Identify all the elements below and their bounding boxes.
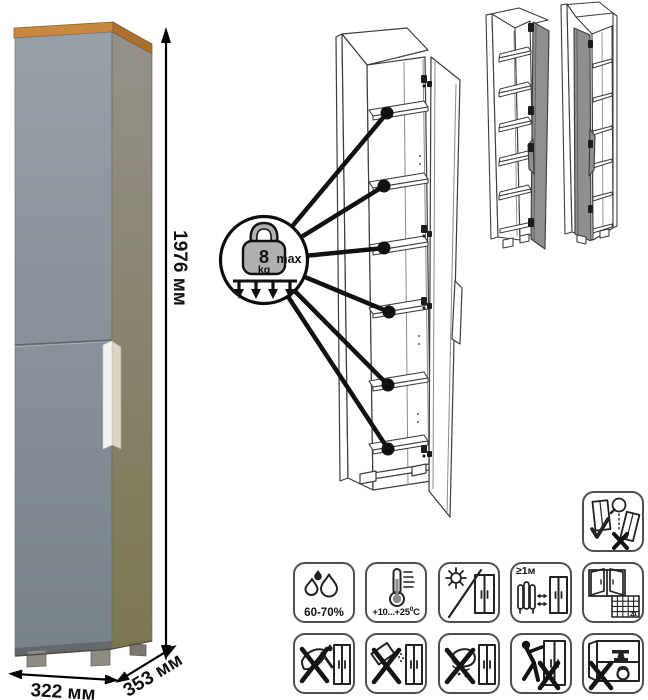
calendar-day: 21 xyxy=(630,611,638,618)
variant-door-right xyxy=(486,8,549,249)
open-window-icon xyxy=(589,569,625,596)
avoid-direct-sunlight-icon xyxy=(438,562,500,623)
open-cabinet-drawing xyxy=(336,28,462,517)
temperature-range-icon: +10...+250C xyxy=(365,562,427,623)
anvil-icon xyxy=(612,650,629,661)
ventilate-room-icon: 21 xyxy=(582,562,644,623)
foot xyxy=(503,238,513,248)
double-arrow-icon xyxy=(537,594,548,607)
weight-unit: kg xyxy=(258,264,270,276)
weight-qualifier: max xyxy=(276,252,301,266)
radiator-icon xyxy=(518,582,535,613)
no-sharp-tools-icon xyxy=(293,633,355,694)
foot xyxy=(360,471,376,484)
calendar-icon: 21 xyxy=(612,596,639,618)
shelf-weight-badge: 8 kg max xyxy=(221,217,308,304)
no-abrasive-cleaners-icon xyxy=(365,633,427,694)
foot xyxy=(600,229,609,238)
arrowhead-right-icon xyxy=(105,675,120,686)
dimension-height: 1976 мм xyxy=(161,27,190,661)
foot xyxy=(520,234,529,243)
wardrobe-glyph xyxy=(550,577,567,613)
foot xyxy=(577,235,586,244)
furniture-spec-sheet: 1976 мм 322 мм 353 мм xyxy=(0,0,648,700)
variant-door-left xyxy=(561,2,617,244)
distance-label: ≥1м xyxy=(516,565,535,577)
door-handle-side xyxy=(112,341,121,449)
x-mark-icon xyxy=(591,663,611,688)
x-mark-icon xyxy=(302,649,327,681)
door-handle xyxy=(103,341,112,449)
no-wet-cleaning-icon xyxy=(438,633,500,694)
person-figure xyxy=(522,641,542,680)
dimension-depth: 353 мм xyxy=(113,641,190,700)
x-mark-icon xyxy=(374,650,399,682)
door-handle-notch xyxy=(589,129,595,176)
slash-line xyxy=(449,570,481,617)
wardrobe-glyph xyxy=(475,575,494,613)
cabinet-side-panel xyxy=(112,32,152,649)
anti-tip-wall-anchor-icon xyxy=(582,491,644,552)
gray-door xyxy=(531,22,549,249)
wardrobe-glyph xyxy=(406,645,422,684)
heat-source-distance-icon: ≥1м xyxy=(510,562,572,623)
wardrobe-glyph xyxy=(334,645,350,684)
height-label: 1976 мм xyxy=(169,230,190,306)
no-dragging-icon xyxy=(510,633,572,694)
humidity-label: 60-70% xyxy=(295,607,353,619)
humidity-icon: 60-70% xyxy=(293,562,355,623)
product-photo xyxy=(14,22,152,667)
sun-icon xyxy=(446,568,466,588)
foot xyxy=(27,650,46,667)
wardrobe-glyph xyxy=(479,645,495,684)
width-label: 322 мм xyxy=(30,680,96,700)
arrowhead-left-icon xyxy=(8,669,23,680)
arrowhead-up-icon xyxy=(161,27,171,43)
temperature-label: +10...+250C xyxy=(367,606,425,618)
dimension-width: 322 мм xyxy=(7,669,120,700)
no-overload-icon xyxy=(582,633,644,694)
